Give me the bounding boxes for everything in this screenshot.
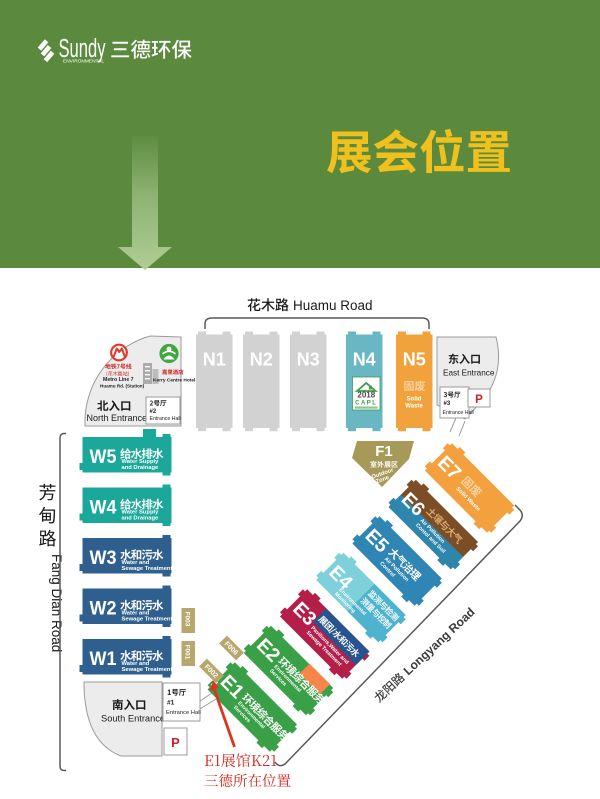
svg-text:Kerry Centre Hotel: Kerry Centre Hotel <box>153 378 195 384</box>
svg-text:Sewage Treatment: Sewage Treatment <box>122 617 173 623</box>
svg-text:W5: W5 <box>90 446 117 468</box>
svg-text:North Entrance: North Entrance <box>87 413 148 423</box>
svg-text:Sewage Treatment: Sewage Treatment <box>122 566 173 572</box>
svg-text:and Drainage: and Drainage <box>122 516 159 522</box>
svg-text:Metro Line 7: Metro Line 7 <box>103 377 134 383</box>
svg-text:Longyang Road: Longyang Road <box>401 605 478 678</box>
svg-text:N2: N2 <box>250 350 273 370</box>
svg-text:East Entrance: East Entrance <box>443 369 495 378</box>
svg-text:South Entrance: South Entrance <box>101 714 165 724</box>
svg-text:CAPL: CAPL <box>355 401 377 407</box>
svg-text:Fang Dian Road: Fang Dian Road <box>49 554 64 652</box>
svg-text:W3: W3 <box>90 547 117 569</box>
svg-text:N1: N1 <box>203 350 226 370</box>
svg-text:N4: N4 <box>353 350 376 370</box>
svg-text:F003: F003 <box>184 612 191 627</box>
svg-text:P: P <box>171 735 180 750</box>
svg-text:W2: W2 <box>90 598 117 620</box>
svg-text:P: P <box>475 394 483 406</box>
svg-text:Entrance Hall: Entrance Hall <box>166 710 201 716</box>
svg-text:F1: F1 <box>375 443 393 460</box>
svg-text:Entrance Hall: Entrance Hall <box>443 410 474 416</box>
svg-text:#2: #2 <box>150 409 157 415</box>
svg-text:#1: #1 <box>167 700 175 707</box>
svg-text:Huamu Road: Huamu Road <box>293 298 373 313</box>
svg-text:Solid: Solid <box>407 397 422 403</box>
svg-text:Entrance Hall: Entrance Hall <box>150 416 181 422</box>
svg-text:F001: F001 <box>184 645 191 660</box>
svg-text:and Drainage: and Drainage <box>122 465 159 471</box>
svg-text:N5: N5 <box>403 350 426 370</box>
svg-text:W1: W1 <box>90 648 117 670</box>
svg-text:Huamu Rd. (Station): Huamu Rd. (Station) <box>100 384 145 389</box>
svg-text:#3: #3 <box>444 401 451 407</box>
svg-text:W4: W4 <box>90 497 117 519</box>
svg-text:Sewage Treatment: Sewage Treatment <box>122 667 173 673</box>
svg-text:2018: 2018 <box>357 391 375 400</box>
svg-text:Waste: Waste <box>405 404 423 410</box>
svg-text:N3: N3 <box>297 350 320 370</box>
svg-text:ENVIRONMENTAL: ENVIRONMENTAL <box>63 59 104 64</box>
